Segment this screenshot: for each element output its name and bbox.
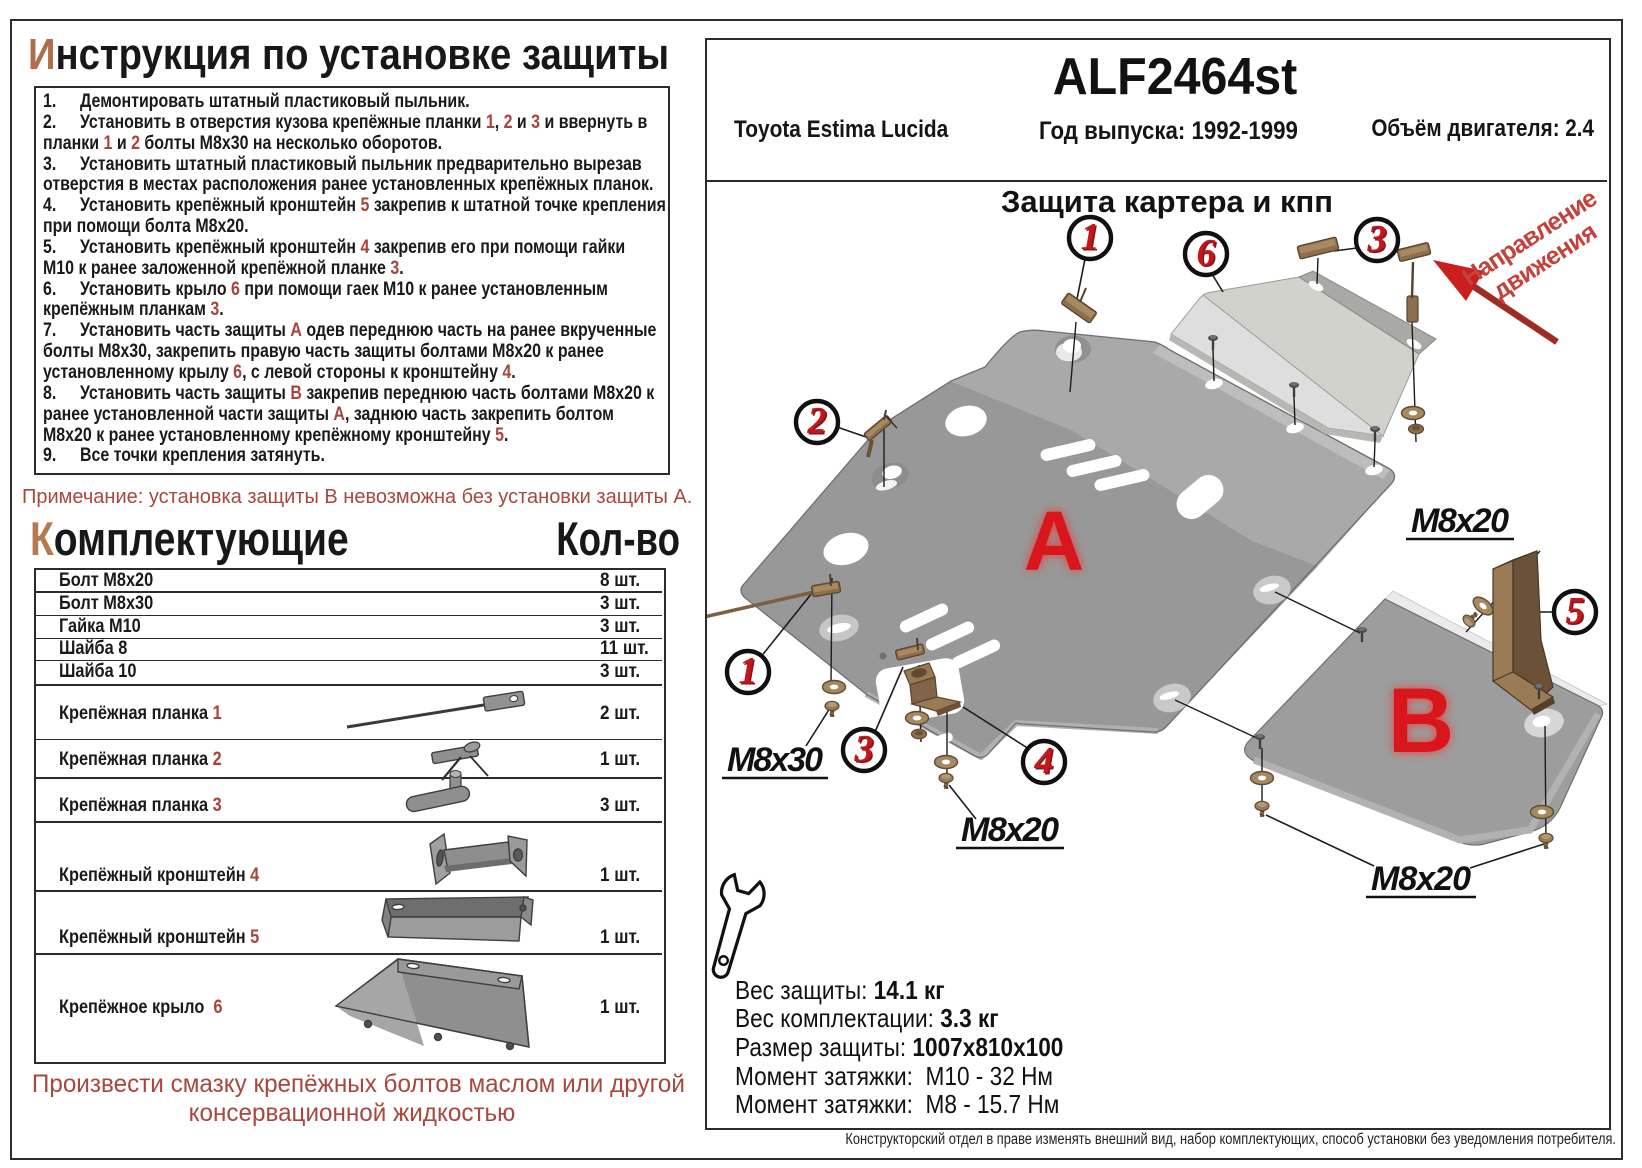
svg-text:М8х30: М8х30 [727, 741, 823, 779]
svg-text:М8х20: М8х20 [961, 811, 1059, 849]
svg-text:3: 3 [854, 728, 874, 770]
svg-text:1: 1 [739, 650, 758, 692]
svg-text:1: 1 [1081, 216, 1100, 258]
svg-text:6: 6 [1197, 232, 1216, 274]
svg-text:3: 3 [1367, 218, 1387, 260]
svg-text:В: В [1388, 670, 1454, 772]
svg-text:А: А [1024, 494, 1085, 588]
svg-text:4: 4 [1034, 740, 1054, 782]
svg-text:5: 5 [1566, 590, 1585, 632]
svg-text:2: 2 [807, 400, 827, 442]
svg-text:М8х20: М8х20 [1371, 860, 1471, 898]
svg-text:М8х20: М8х20 [1411, 502, 1509, 540]
